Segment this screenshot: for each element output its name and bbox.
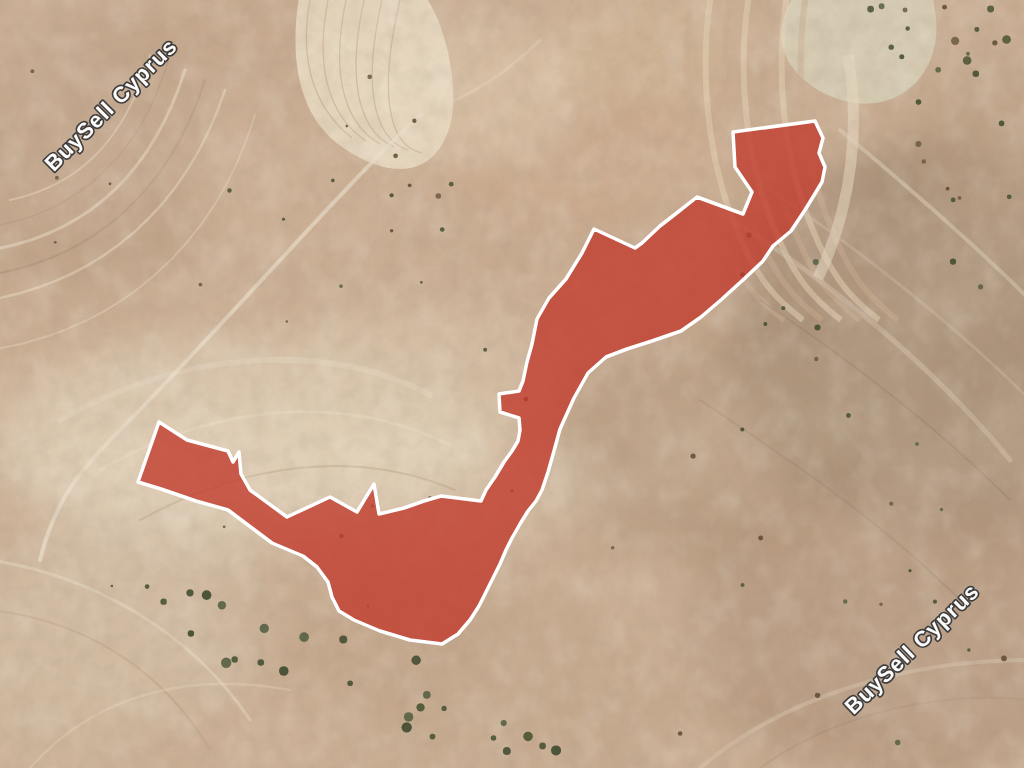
parcel-overlay-layer: BuySell Cyprus BuySell Cyprus	[0, 0, 1024, 768]
satellite-map: BuySell Cyprus BuySell Cyprus	[0, 0, 1024, 768]
parcel-polygon	[138, 121, 825, 644]
watermark-top-left: BuySell Cyprus	[40, 34, 183, 177]
watermark-bottom-right: BuySell Cyprus	[840, 578, 984, 719]
